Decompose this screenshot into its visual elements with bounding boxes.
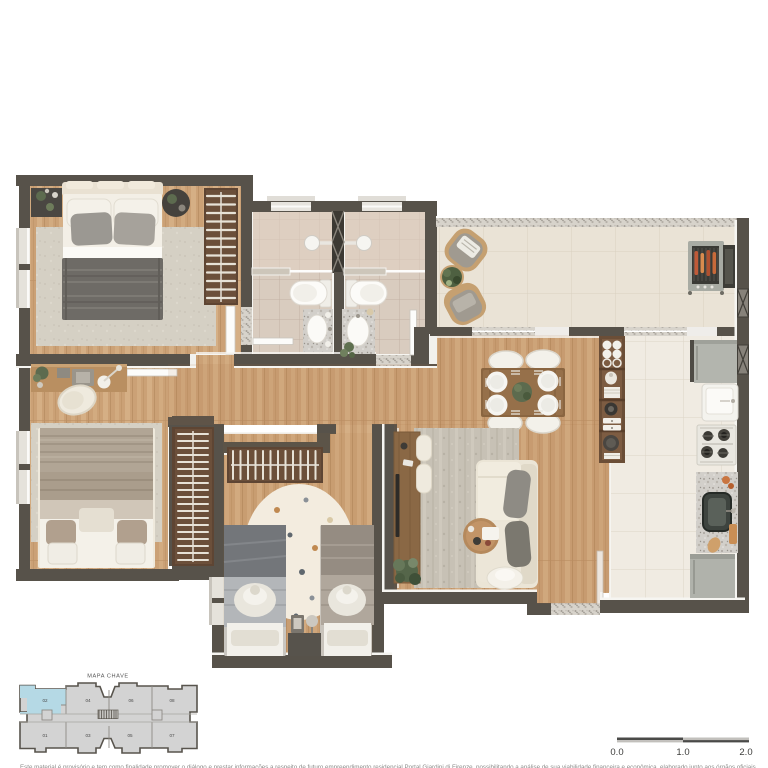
svg-text:03: 03 [85,733,91,738]
svg-text:1.0: 1.0 [676,747,689,758]
svg-text:04: 04 [85,698,91,703]
svg-text:08: 08 [169,698,175,703]
svg-text:2.0: 2.0 [739,747,752,758]
svg-text:Este material é provisório e t: Este material é provisório e tem como fi… [20,764,756,768]
svg-text:06: 06 [128,698,134,703]
svg-text:02: 02 [42,698,48,703]
svg-text:01: 01 [42,733,48,738]
svg-text:0.0: 0.0 [610,747,623,758]
svg-text:MAPA CHAVE: MAPA CHAVE [87,674,129,680]
svg-text:07: 07 [169,733,175,738]
svg-text:05: 05 [127,733,133,738]
